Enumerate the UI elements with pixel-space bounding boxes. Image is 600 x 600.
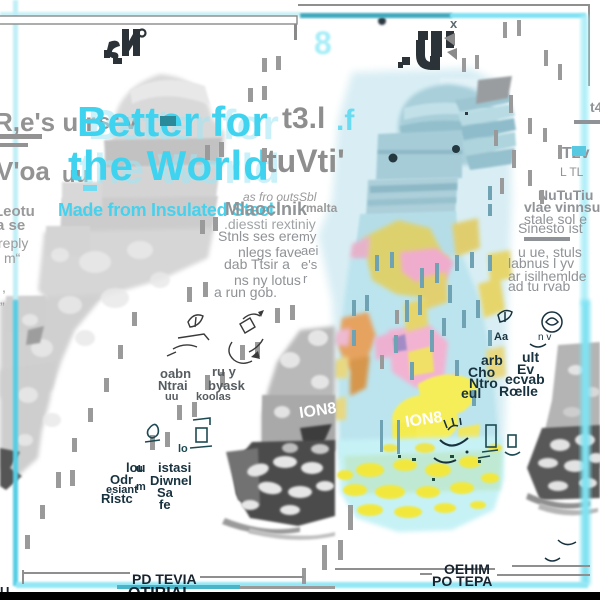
svg-text:malta: malta xyxy=(306,201,338,215)
svg-text:r: r xyxy=(303,271,308,286)
svg-text:my: my xyxy=(299,229,317,244)
svg-text:m: m xyxy=(136,481,146,493)
svg-text:uu: uu xyxy=(165,391,178,403)
svg-text:x: x xyxy=(450,16,458,31)
svg-text:t4: t4 xyxy=(590,99,600,115)
svg-text:8: 8 xyxy=(314,25,332,61)
svg-text:dab Ttsir a: dab Ttsir a xyxy=(224,256,290,272)
svg-text:PO TEPA: PO TEPA xyxy=(432,573,492,589)
svg-text:the World: the World xyxy=(68,142,270,189)
svg-text:aei: aei xyxy=(301,243,318,258)
svg-text:L TL: L TL xyxy=(560,165,584,179)
svg-text:V'oa: V'oa xyxy=(0,156,50,186)
svg-text:e's: e's xyxy=(301,257,318,272)
svg-text:Sinesto ist: Sinesto ist xyxy=(518,220,583,236)
svg-text:Stnls ses ere: Stnls ses ere xyxy=(218,228,299,244)
svg-text:koolas: koolas xyxy=(196,391,231,403)
svg-text:ru y: ru y xyxy=(212,364,237,379)
svg-text:lo: lo xyxy=(178,443,188,455)
svg-text:m“: m“ xyxy=(4,250,21,266)
svg-text:n v: n v xyxy=(538,332,551,343)
svg-text:”: ” xyxy=(0,299,5,315)
svg-text:Rœlle: Rœlle xyxy=(499,383,538,399)
svg-text:eul: eul xyxy=(461,385,481,401)
svg-text:,: , xyxy=(2,279,6,295)
svg-text:tuVti': tuVti' xyxy=(266,143,345,179)
svg-text:Aa: Aa xyxy=(494,331,509,343)
svg-text:ad tu rvab: ad tu rvab xyxy=(508,278,570,294)
svg-text:t3.l: t3.l xyxy=(282,102,325,135)
svg-text:a run gob.: a run gob. xyxy=(214,284,277,300)
svg-text:reply: reply xyxy=(0,235,28,251)
svg-text:Ristc: Ristc xyxy=(101,491,133,506)
svg-text:u: u xyxy=(136,463,143,475)
svg-text:.f: .f xyxy=(336,104,355,137)
svg-text:fe: fe xyxy=(159,497,171,512)
svg-text:a se: a se xyxy=(0,217,25,234)
